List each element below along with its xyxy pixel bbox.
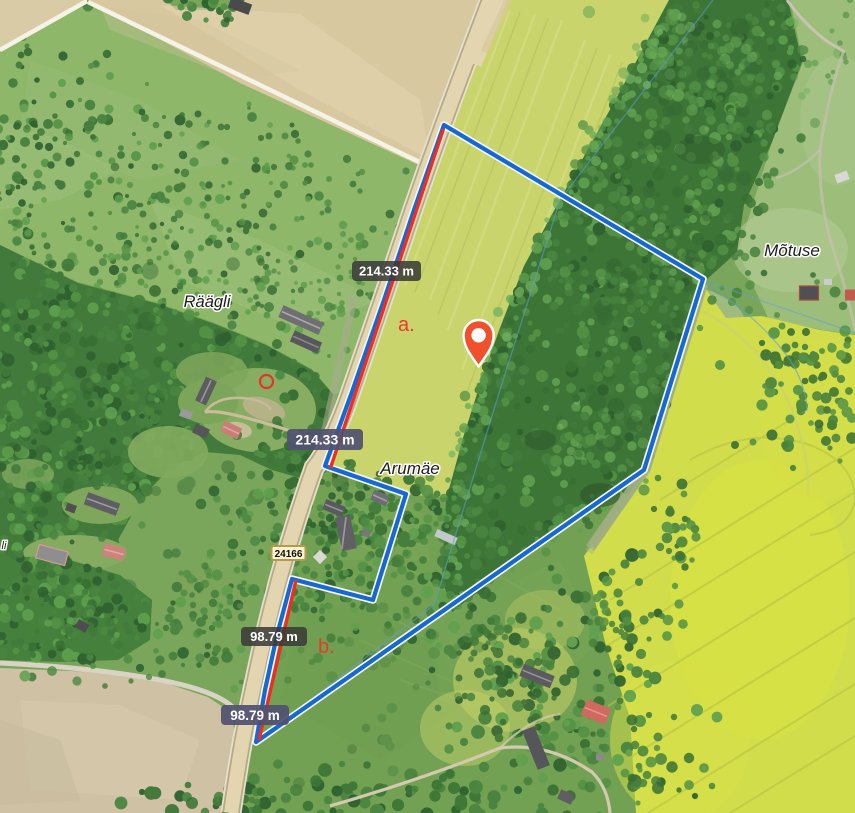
svg-text:24166: 24166 xyxy=(275,549,303,560)
svg-text:98.79 m: 98.79 m xyxy=(230,708,280,723)
svg-text:li: li xyxy=(2,540,7,552)
svg-text:214.33 m: 214.33 m xyxy=(359,264,414,279)
svg-text:98.79 m: 98.79 m xyxy=(250,629,298,644)
svg-text:214.33 m: 214.33 m xyxy=(295,432,354,448)
svg-text:b.: b. xyxy=(318,636,335,658)
svg-text:Mõtuse: Mõtuse xyxy=(764,241,820,260)
svg-text:a.: a. xyxy=(398,314,415,336)
svg-text:Arumäe: Arumäe xyxy=(379,459,440,478)
svg-text:Räägli: Räägli xyxy=(184,293,232,311)
